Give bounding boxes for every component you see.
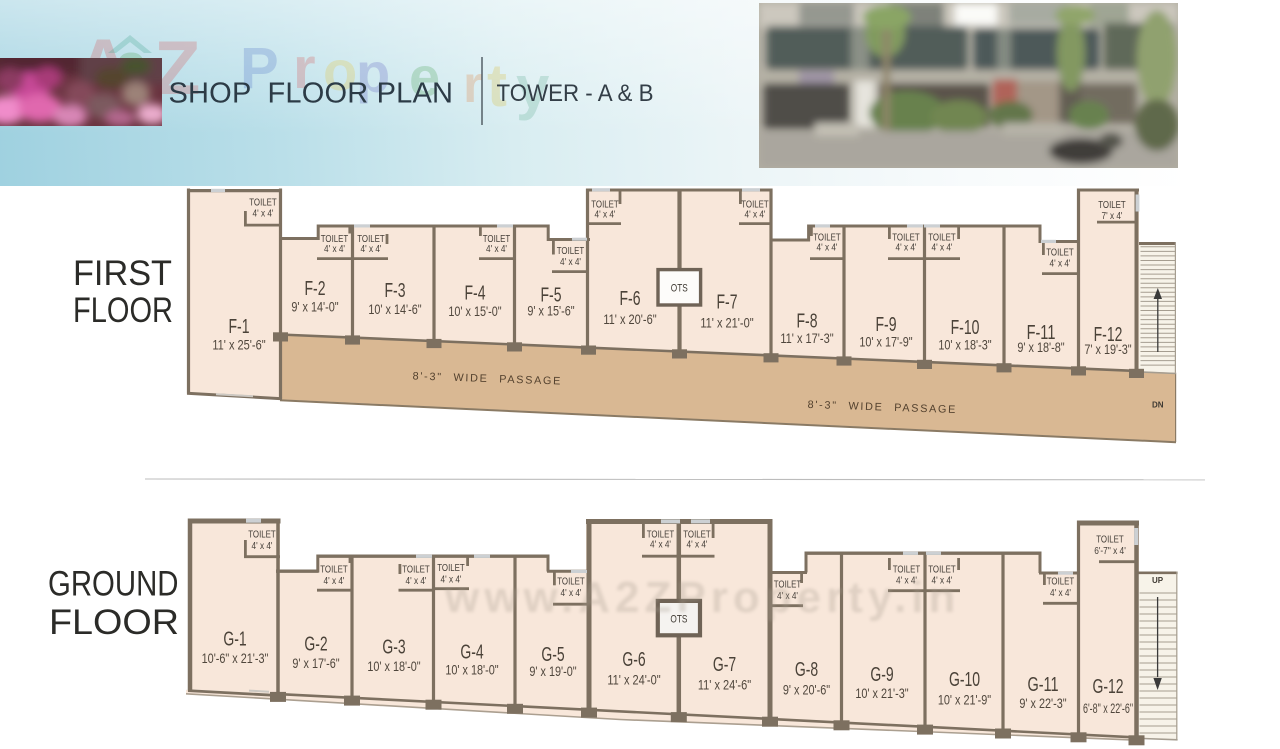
svg-text:UP: UP xyxy=(1152,576,1164,585)
svg-text:9' x 17'-6": 9' x 17'-6" xyxy=(292,655,339,671)
svg-text:F-2: F-2 xyxy=(305,278,326,300)
svg-text:OTS: OTS xyxy=(671,283,688,295)
svg-text:4' x 4': 4' x 4' xyxy=(1050,259,1071,270)
svg-text:4' x 4': 4' x 4' xyxy=(896,243,917,254)
svg-text:4' x 4': 4' x 4' xyxy=(324,244,345,255)
svg-text:4' x 4': 4' x 4' xyxy=(650,540,671,551)
svg-text:9' x 14'-0": 9' x 14'-0" xyxy=(291,299,338,315)
svg-text:G-6: G-6 xyxy=(622,649,645,671)
svg-text:G-11: G-11 xyxy=(1027,674,1058,696)
svg-text:TOILET: TOILET xyxy=(248,529,276,541)
svg-text:9' x 15'-6": 9' x 15'-6" xyxy=(527,303,574,319)
svg-text:11' x 17'-3": 11' x 17'-3" xyxy=(780,330,833,346)
svg-text:4' x 4': 4' x 4' xyxy=(406,576,427,587)
svg-text:TOILET: TOILET xyxy=(320,564,348,576)
svg-text:SHOP FLOOR PLAN: SHOP FLOOR PLAN xyxy=(169,78,454,110)
svg-text:TOILET: TOILET xyxy=(249,197,277,209)
svg-text:G-2: G-2 xyxy=(304,634,327,656)
svg-text:TOILET: TOILET xyxy=(1096,534,1124,546)
svg-text:G-12: G-12 xyxy=(1092,676,1123,698)
svg-text:G-10: G-10 xyxy=(949,669,980,691)
svg-text:9' x 19'-0": 9' x 19'-0" xyxy=(529,663,576,679)
svg-text:F-1: F-1 xyxy=(229,316,250,338)
svg-text:DN: DN xyxy=(1152,401,1164,410)
svg-text:10' x 21'-9": 10' x 21'-9" xyxy=(938,692,991,708)
svg-text:4' x 4': 4' x 4' xyxy=(486,244,507,255)
svg-text:10' x 17'-9": 10' x 17'-9" xyxy=(859,334,912,350)
svg-text:4' x 4': 4' x 4' xyxy=(361,244,382,255)
svg-text:10'-6" x 21'-3": 10'-6" x 21'-3" xyxy=(202,650,269,666)
svg-text:11' x 25'-6": 11' x 25'-6" xyxy=(212,337,265,353)
svg-text:4' x 4': 4' x 4' xyxy=(560,257,581,268)
svg-text:4' x 4': 4' x 4' xyxy=(595,210,616,221)
svg-text:4' x 4': 4' x 4' xyxy=(932,243,953,254)
svg-text:4' x 4': 4' x 4' xyxy=(324,576,345,587)
svg-text:10' x 18'-0": 10' x 18'-0" xyxy=(367,658,420,674)
svg-text:F-6: F-6 xyxy=(620,288,641,310)
svg-text:9' x 18'-8": 9' x 18'-8" xyxy=(1017,339,1064,355)
svg-text:10' x 18'-0": 10' x 18'-0" xyxy=(445,662,498,678)
svg-text:G-8: G-8 xyxy=(795,659,818,681)
svg-text:TOILET: TOILET xyxy=(402,564,430,576)
svg-text:F-7: F-7 xyxy=(717,292,738,314)
svg-text:4' x 4': 4' x 4' xyxy=(253,209,274,220)
svg-text:G-1: G-1 xyxy=(223,629,246,651)
svg-text:6'-8" x 22'-6": 6'-8" x 22'-6" xyxy=(1083,700,1133,716)
svg-text:GROUND: GROUND xyxy=(48,565,179,604)
svg-text:G-3: G-3 xyxy=(382,637,405,659)
svg-text:4' x 4': 4' x 4' xyxy=(252,541,273,552)
svg-text:9' x 22'-3": 9' x 22'-3" xyxy=(1019,695,1066,711)
svg-text:7' x 4': 7' x 4' xyxy=(1102,211,1123,222)
svg-text:11' x 24'-0": 11' x 24'-0" xyxy=(607,672,660,688)
svg-text:TOILET: TOILET xyxy=(1047,576,1075,588)
svg-text:G-9: G-9 xyxy=(870,664,893,686)
svg-text:FLOOR: FLOOR xyxy=(73,291,173,330)
svg-text:4' x 4': 4' x 4' xyxy=(745,210,766,221)
svg-text:10' x 18'-3": 10' x 18'-3" xyxy=(938,337,991,353)
svg-text:G-4: G-4 xyxy=(460,642,483,664)
svg-text:6'-7" x 4': 6'-7" x 4' xyxy=(1094,546,1126,557)
svg-text:G-7: G-7 xyxy=(713,654,736,676)
svg-text:www.A2ZProperty.in: www.A2ZProperty.in xyxy=(444,573,960,622)
svg-text:4' x 4': 4' x 4' xyxy=(817,243,838,254)
svg-text:TOILET: TOILET xyxy=(1098,199,1126,211)
svg-text:TOILET: TOILET xyxy=(557,245,585,257)
svg-text:11' x 24'-6": 11' x 24'-6" xyxy=(698,677,751,693)
svg-text:FLOOR: FLOOR xyxy=(49,603,179,642)
svg-text:TOWER - A & B: TOWER - A & B xyxy=(497,80,654,107)
svg-text:F-4: F-4 xyxy=(465,283,486,305)
svg-text:11' x 20'-6": 11' x 20'-6" xyxy=(603,311,656,327)
svg-text:FIRST: FIRST xyxy=(73,254,172,293)
svg-text:11' x 21'-0": 11' x 21'-0" xyxy=(700,315,753,331)
svg-text:10' x 15'-0": 10' x 15'-0" xyxy=(448,303,501,319)
svg-text:F-3: F-3 xyxy=(385,280,406,302)
svg-text:10' x 14'-6": 10' x 14'-6" xyxy=(368,301,421,317)
svg-text:4' x 4': 4' x 4' xyxy=(1050,588,1071,599)
svg-text:TOILET: TOILET xyxy=(1046,247,1074,259)
svg-text:10' x 21'-3": 10' x 21'-3" xyxy=(855,685,908,701)
svg-text:7' x 19'-3": 7' x 19'-3" xyxy=(1084,341,1131,357)
svg-text:4' x 4': 4' x 4' xyxy=(687,540,708,551)
svg-text:9' x 20'-6": 9' x 20'-6" xyxy=(783,682,830,698)
